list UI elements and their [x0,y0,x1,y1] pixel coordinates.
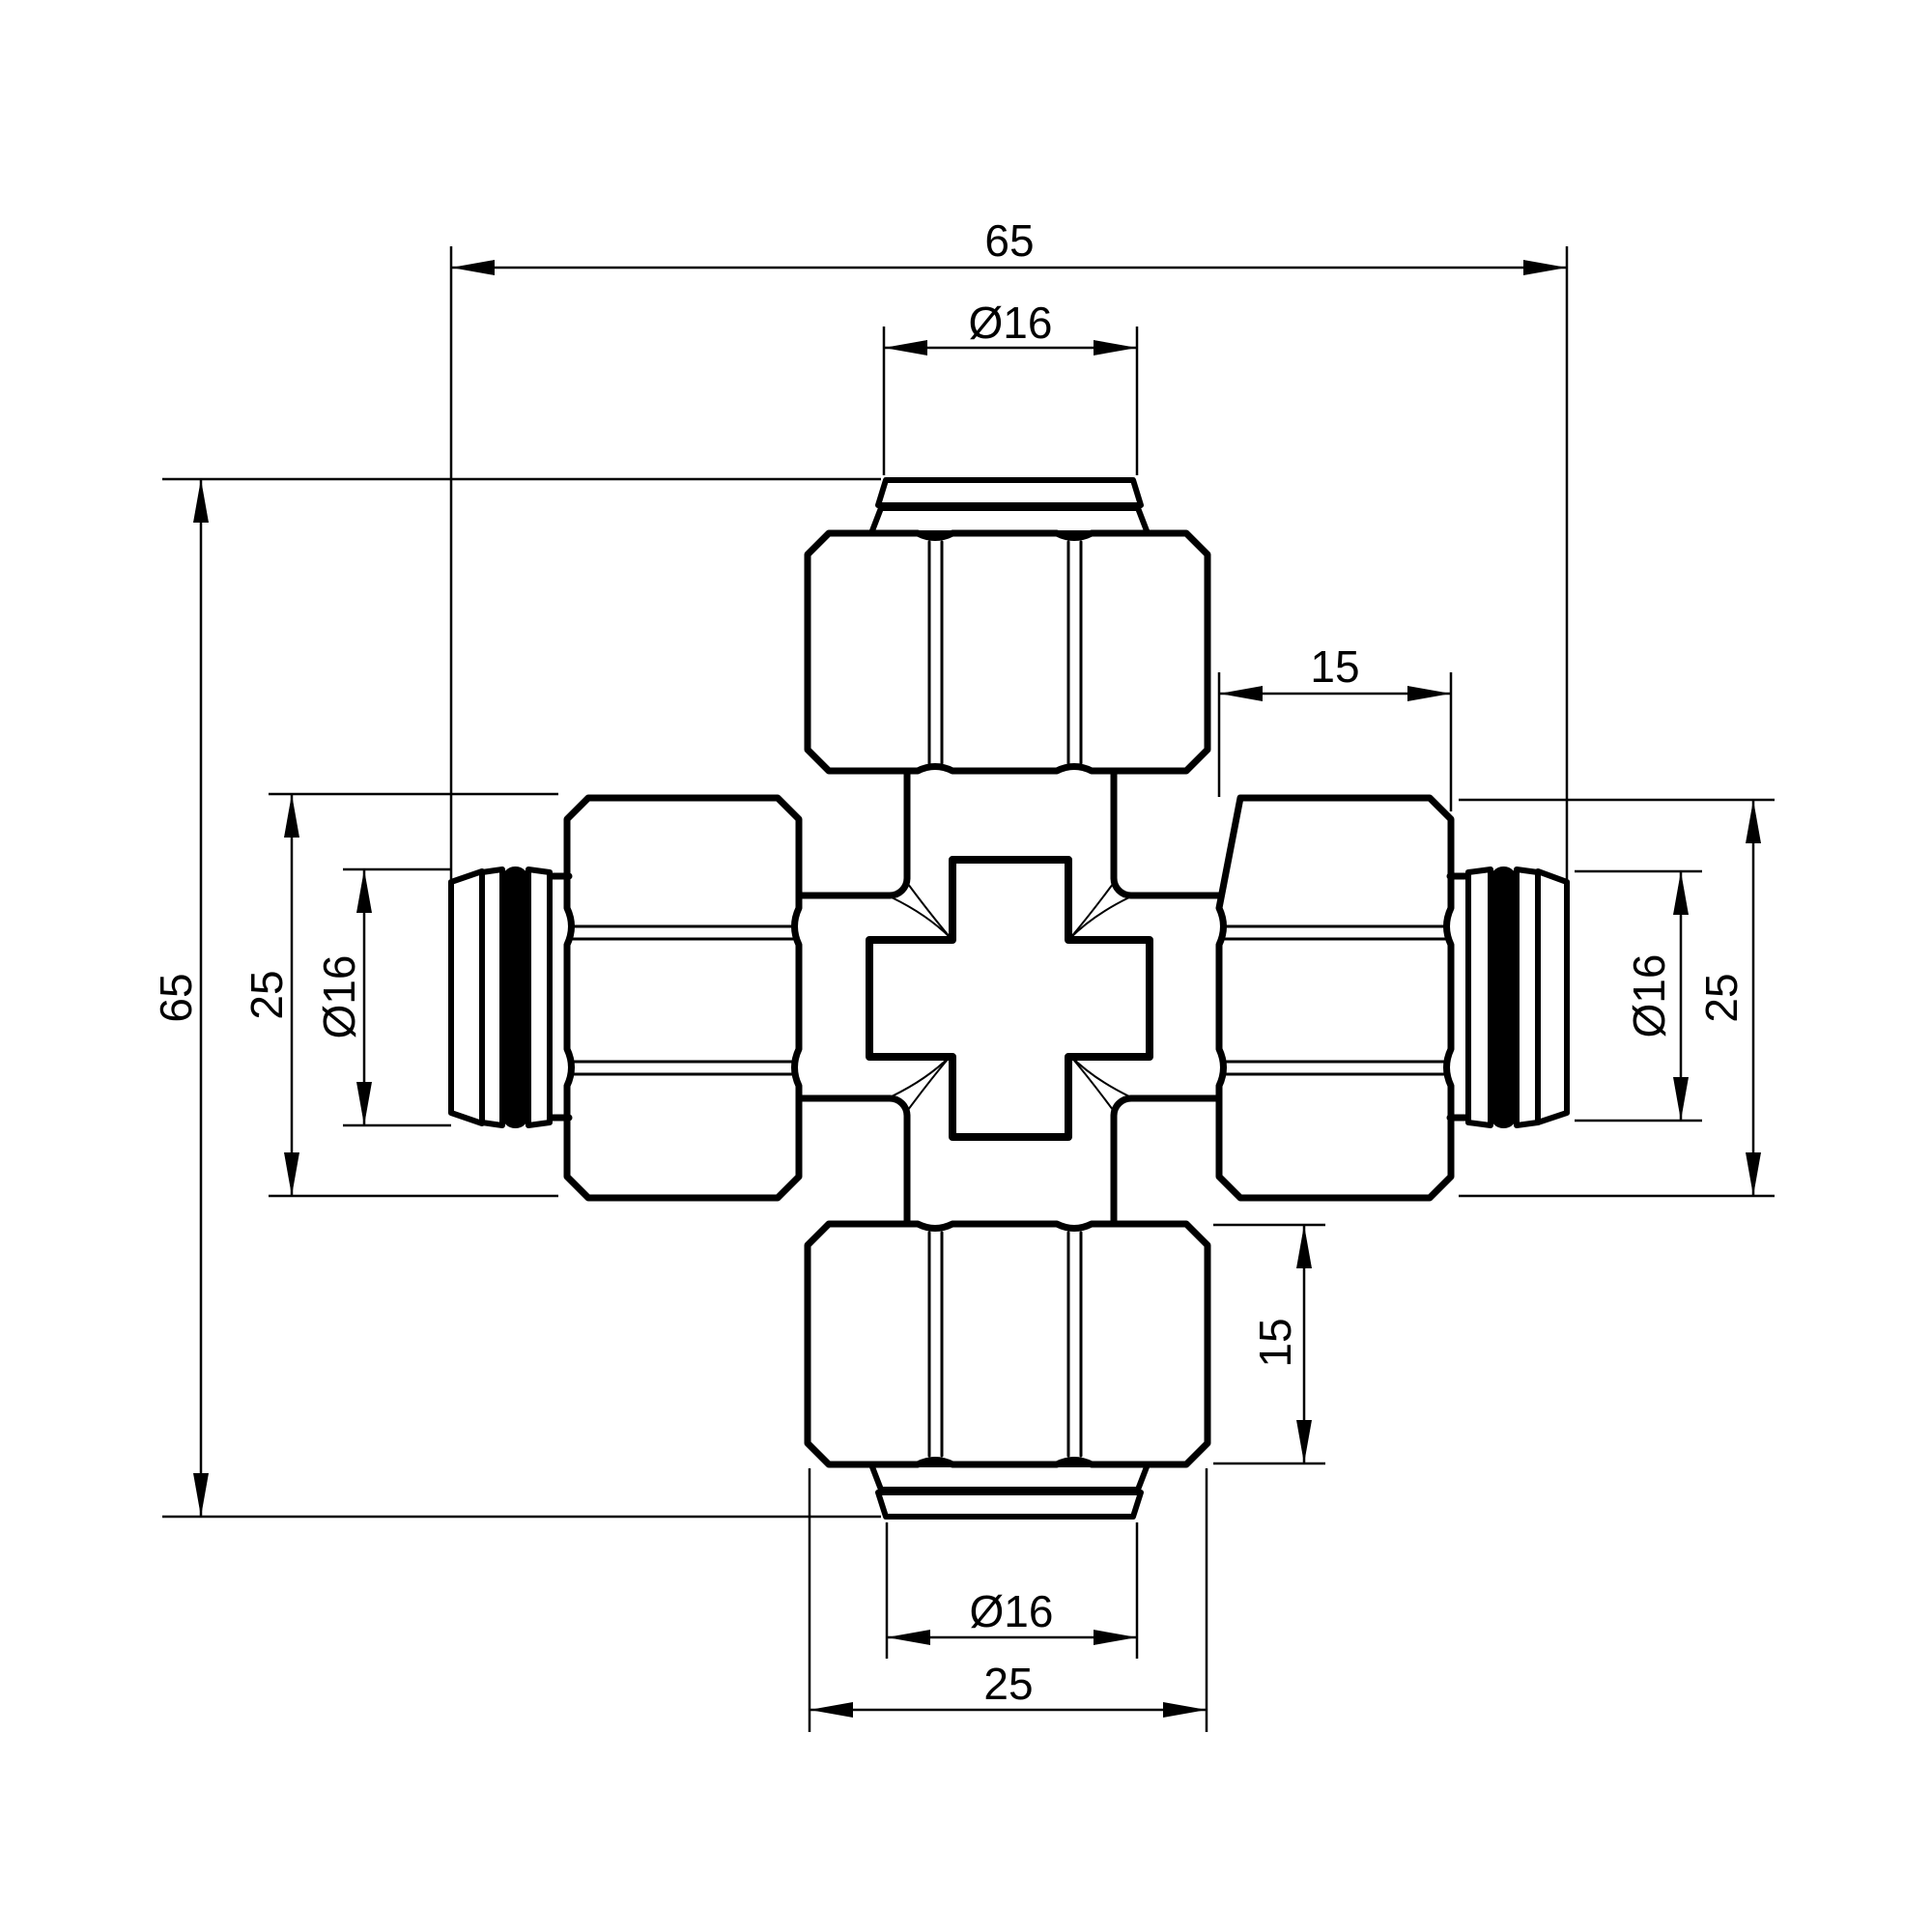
arrowhead-top [193,479,209,523]
top-port-cap [871,480,1148,533]
bottom-hex-nut [808,1224,1207,1464]
dim-bottom-port-diameter: Ø16 [887,1522,1137,1659]
left-port-male-end [451,867,569,1128]
left-o-ring [502,867,528,1128]
dim-bottom-nut-depth: 15 [1213,1225,1325,1463]
arrowhead-top [1746,800,1761,843]
left-port-ring-inner [528,869,550,1125]
center-cross-bore [869,860,1150,1137]
right-port-ring-outer [1517,869,1538,1125]
dimension-label: 15 [1310,641,1359,692]
dim-right-port-diameter: Ø16 [1575,871,1702,1121]
arrowhead-left [451,260,495,275]
arrowhead-right [1407,686,1451,701]
arrowhead-top [1296,1225,1312,1268]
top-hex-nut [808,533,1207,771]
top-nut-outline [808,533,1207,771]
drawing-canvas: 65 Ø16 15 65 25 [0,0,1932,1932]
right-hex-nut [1219,798,1451,1198]
top-cap-outer-band [878,480,1141,505]
right-nut-outline [1219,798,1451,1198]
dimension-label: Ø16 [969,298,1053,348]
arrowhead-right [1163,1702,1207,1718]
dimension-label: 65 [151,973,201,1022]
right-port-end-face [1538,871,1567,1122]
dimension-label: Ø16 [970,1586,1054,1636]
arrowhead-left [887,1630,930,1645]
arrowhead-top [356,869,372,913]
left-nut-outline [567,798,799,1198]
arrowhead-left [884,340,927,355]
runout-top-left-a [892,897,951,938]
runout-bottom-right-a [1070,1056,1129,1096]
runout-top-right-a [1070,897,1129,938]
arrowhead-bottom [1296,1420,1312,1463]
bottom-cap-inner-band [871,1464,1148,1490]
arrowhead-bottom [284,1152,299,1196]
dim-left-port-diameter: Ø16 [314,869,451,1125]
right-o-ring [1491,867,1517,1128]
cross-fitting-technical-drawing: 65 Ø16 15 65 25 [0,0,1932,1932]
center-body [799,771,1219,1224]
arrowhead-bottom [1746,1152,1761,1196]
left-port-ring-outer [482,869,502,1125]
dimension-label: 65 [984,215,1034,266]
dim-right-nut-depth: 15 [1219,641,1451,811]
bottom-port-cap [871,1464,1148,1517]
top-cap-inner-band [871,508,1148,533]
bottom-cap-outer-band [878,1492,1141,1517]
arrowhead-right [1094,1630,1137,1645]
left-hex-nut [567,798,799,1198]
right-port-male-end [1450,867,1567,1128]
dimension-label: 15 [1250,1318,1300,1367]
arrowhead-bottom [356,1082,372,1125]
dimension-label: Ø16 [1624,954,1674,1038]
fillet-runout-curves [892,880,1129,1114]
arrowhead-right [1094,340,1137,355]
dimension-label: Ø16 [314,955,364,1039]
dimension-label: 25 [983,1659,1033,1709]
arrowhead-bottom [193,1473,209,1517]
arrowhead-top [1673,871,1689,915]
arrowhead-left [810,1702,853,1718]
arrowhead-right [1523,260,1567,275]
left-port-end-face [451,871,482,1123]
arrowhead-top [284,794,299,838]
dimension-label: 25 [241,970,292,1019]
dim-top-port-diameter: Ø16 [884,298,1137,475]
right-port-ring-inner [1468,869,1491,1125]
bottom-nut-outline [808,1224,1207,1464]
arrowhead-left [1219,686,1263,701]
dimension-label: 25 [1696,973,1747,1022]
arrowhead-bottom [1673,1077,1689,1121]
runout-bottom-left-a [892,1056,951,1096]
